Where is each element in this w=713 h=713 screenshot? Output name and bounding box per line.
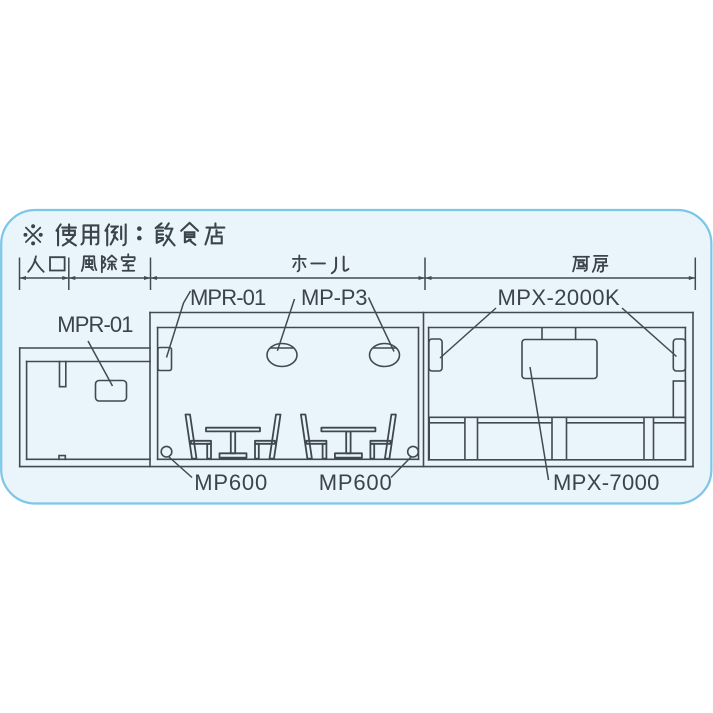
svg-text:MPX-2000K: MPX-2000K — [498, 285, 621, 310]
svg-text:MP-P3: MP-P3 — [301, 285, 367, 310]
svg-text:MPR-01: MPR-01 — [57, 312, 133, 337]
svg-text:MPX-7000: MPX-7000 — [553, 470, 660, 495]
svg-text:MP600: MP600 — [194, 470, 268, 495]
svg-text:MP600: MP600 — [319, 470, 393, 495]
svg-text:MPR-01: MPR-01 — [190, 285, 266, 310]
